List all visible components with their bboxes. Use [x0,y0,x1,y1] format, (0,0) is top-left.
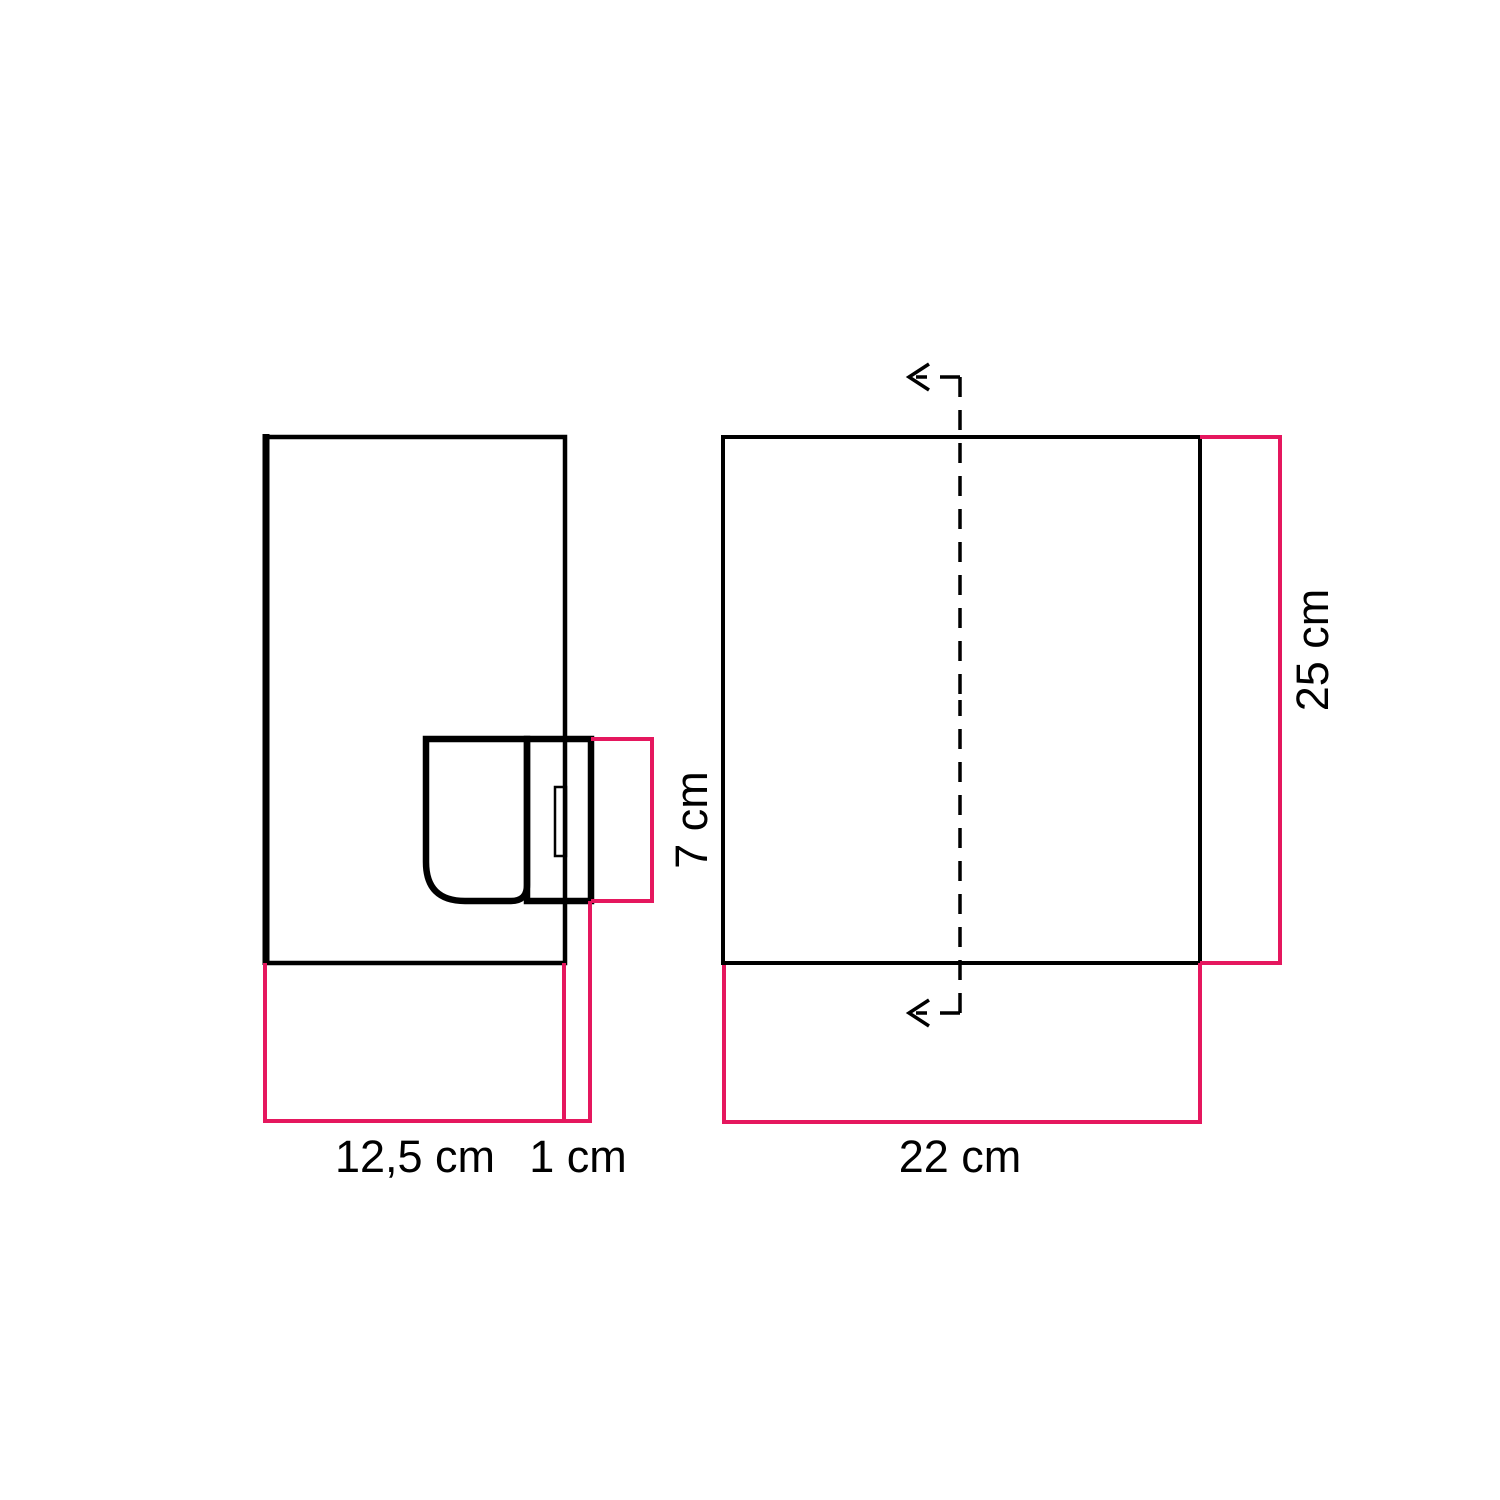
diagram-canvas: 7 cm 12,5 cm 1 cm 25 cm [0,0,1500,1500]
dimension-bracket-7cm [591,739,652,901]
dimension-label-25cm: 25 cm [1287,589,1338,712]
dimension-label-7cm: 7 cm [666,771,717,869]
socket-body-outline [527,739,591,901]
dimension-label-1cm: 1 cm [529,1131,627,1182]
front-view: 25 cm 22 cm [722,364,1338,1182]
dimension-label-12-5cm: 12,5 cm [335,1131,495,1182]
dimension-label-22cm: 22 cm [899,1131,1022,1182]
dimension-diagram: 7 cm 12,5 cm 1 cm 25 cm [0,0,1500,1500]
dimension-bracket-25cm [1200,437,1280,963]
lamp-holder-cup-outline [426,739,527,901]
side-view: 7 cm 12,5 cm 1 cm [263,434,717,1182]
side-view-body-outline [266,437,565,963]
